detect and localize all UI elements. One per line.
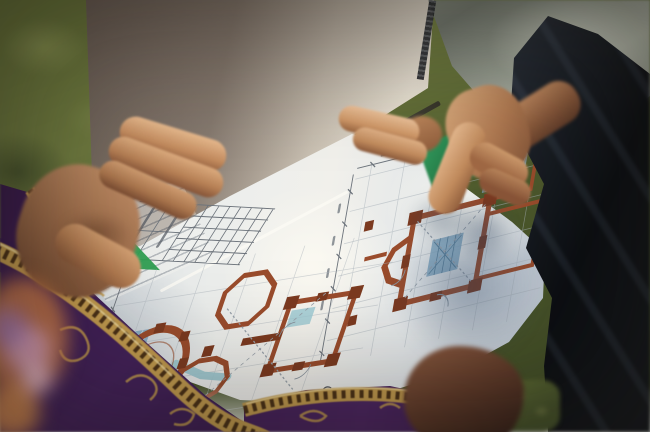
photo-canvas	[0, 0, 650, 432]
foreground-bokeh-blur	[0, 268, 93, 432]
gold-embroidery-flourishes	[60, 292, 400, 425]
